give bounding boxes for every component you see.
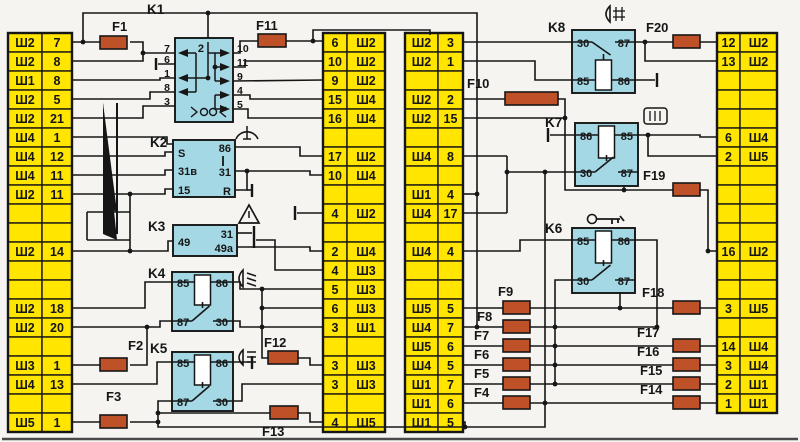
- fuse-body: [505, 92, 558, 105]
- fuse-F7: [503, 339, 530, 352]
- connector-cell-text: Ш5: [749, 302, 769, 316]
- junction-dot: [618, 306, 623, 311]
- wire: [72, 321, 172, 327]
- connector-cell: [717, 318, 740, 337]
- relay-name-label: K1: [147, 2, 165, 17]
- fuse-F5: [503, 377, 530, 390]
- wire: [72, 189, 173, 194]
- connector-cell-text: Ш5: [412, 340, 432, 354]
- connector-cell-text: Ш2: [356, 36, 376, 50]
- connector-cell: [323, 128, 347, 147]
- fuse-body: [100, 36, 127, 49]
- fuse-label: F12: [264, 335, 286, 350]
- connector-cell-text: Ш1: [356, 321, 376, 335]
- connector-cell-text: Ш1: [412, 416, 432, 430]
- junction-dot: [311, 39, 316, 44]
- connector-cell-text: 11: [50, 169, 63, 183]
- connector-cell: [42, 280, 72, 299]
- connector-cell-text: Ш2: [15, 112, 35, 126]
- connector-cell-text: 17: [328, 150, 342, 164]
- junction-dot: [128, 192, 133, 197]
- fuse-body: [268, 351, 298, 364]
- junction-dot: [553, 363, 558, 368]
- fuse-label: F13: [262, 424, 284, 439]
- connector-cell: [740, 204, 777, 223]
- relay-pin-label: 86: [219, 143, 231, 155]
- connector-cell: [740, 261, 777, 280]
- fuse-F6: [503, 358, 530, 371]
- connector-cell-text: Ш4: [15, 169, 35, 183]
- connector-cell-text: Ш2: [749, 245, 769, 259]
- fuse-label: F18: [642, 285, 664, 300]
- junction-dot: [213, 65, 218, 70]
- connector-cell-text: Ш2: [356, 150, 376, 164]
- connector-cell-text: 4: [332, 416, 339, 430]
- relay-pin-label: 86: [216, 278, 228, 290]
- fuse-F1: [100, 36, 127, 49]
- relay-pin-label: 49: [178, 237, 190, 249]
- wire: [72, 78, 175, 80]
- connector-cell: [740, 185, 777, 204]
- junction-dot: [463, 425, 468, 430]
- relay-pin-label: 15: [178, 185, 190, 197]
- fuse-body: [673, 377, 700, 390]
- relay-pin-label: 85: [577, 236, 589, 248]
- connector-cell-text: 5: [447, 302, 454, 316]
- relay-pin-label: 85: [577, 76, 589, 88]
- wire: [233, 80, 323, 81]
- connector-cell: [740, 71, 777, 90]
- wiper-icon: [236, 126, 258, 139]
- fuse-body: [503, 377, 530, 390]
- relay-name-label: K6: [545, 221, 563, 236]
- fuse-label: F14: [640, 382, 663, 397]
- junction-dot: [543, 170, 548, 175]
- connector-cell-text: Ш2: [412, 36, 432, 50]
- connector-cell-text: 6: [332, 302, 339, 316]
- fuse-relay-wiring-diagram: Ш27Ш28Ш18Ш25Ш221Ш41Ш412Ш411Ш211Ш214Ш218Ш…: [0, 0, 800, 442]
- connector-cell-text: 7: [447, 378, 454, 392]
- relay-coil: [195, 355, 211, 385]
- connector-cell-text: Ш4: [749, 131, 769, 145]
- connector-cell-text: 12: [722, 36, 736, 50]
- connector-cell-text: Ш4: [412, 150, 432, 164]
- relay-pin-label: 3: [164, 96, 170, 108]
- connector-cell-text: 4: [447, 188, 454, 202]
- fuse-label: F8: [477, 309, 492, 324]
- connector-cell: [8, 204, 42, 223]
- connector-cell-text: 11: [50, 188, 63, 202]
- connector-cell-text: Ш2: [356, 74, 376, 88]
- wire: [233, 95, 323, 99]
- connector-cell-text: 1: [54, 416, 61, 430]
- connector-cell-text: Ш2: [15, 321, 35, 335]
- junction-dot: [563, 116, 568, 121]
- connector-cell: [740, 280, 777, 299]
- relay-coil: [195, 275, 211, 305]
- icon-stroke: [247, 283, 256, 286]
- relay-pin-label: 6: [164, 54, 170, 66]
- connector-cell-text: 3: [725, 359, 732, 373]
- heated-rear-window-icon: [644, 108, 667, 124]
- wire: [227, 321, 323, 327]
- connector-cell-text: Ш4: [15, 131, 35, 145]
- connector-cell-text: 10: [328, 55, 342, 69]
- junction-dot: [260, 325, 265, 330]
- wire: [72, 241, 173, 251]
- fuse-label: F9: [498, 284, 513, 299]
- junction-dot: [475, 192, 480, 197]
- connector-cell-text: Ш2: [412, 112, 432, 126]
- connector-cell: [740, 109, 777, 128]
- connector-cell-text: Ш2: [15, 188, 35, 202]
- wire: [463, 240, 572, 251]
- junction-dot: [706, 249, 711, 254]
- fuse-F13: [270, 406, 298, 419]
- connector-cell: [717, 185, 740, 204]
- connector-cell: [323, 394, 347, 413]
- connector-cell-text: 10: [328, 169, 342, 183]
- connector-cell-text: 4: [447, 245, 454, 259]
- relay-pin-label: 4: [237, 85, 243, 97]
- junction-dot: [206, 11, 211, 16]
- junction-dot: [505, 170, 510, 175]
- relay-pin-label: 85: [177, 358, 189, 370]
- relay-pin-label: 10: [237, 43, 249, 55]
- connector-cell-text: 6: [447, 397, 454, 411]
- connector-cell-text: 15: [328, 93, 342, 107]
- connector-cell-text: 5: [447, 416, 454, 430]
- wire: [237, 247, 323, 251]
- connector-cell-text: Ш2: [412, 55, 432, 69]
- connector-cell-text: 16: [328, 112, 342, 126]
- connector-cell-text: Ш4: [412, 359, 432, 373]
- connector-cell: [8, 394, 42, 413]
- connector-cell: [347, 185, 385, 204]
- relay-pin-label: 5: [237, 99, 243, 111]
- connector-cell-text: 14: [50, 245, 64, 259]
- relay-pin-label: 11: [237, 57, 248, 69]
- wire: [648, 135, 717, 156]
- connector-cell-text: Ш4: [15, 150, 35, 164]
- connector-cell-text: 18: [50, 302, 64, 316]
- connector-cell-text: 13: [722, 55, 736, 69]
- connector-cell-text: 1: [447, 55, 454, 69]
- connector-cell: [347, 337, 385, 356]
- connector-cell-text: Ш1: [749, 397, 769, 411]
- wire: [235, 147, 323, 156]
- connector-cell-text: Ш5: [356, 416, 376, 430]
- connector-cell-text: Ш3: [356, 302, 376, 316]
- junction-dot: [260, 306, 265, 311]
- wire: [227, 384, 323, 401]
- fuse-label: F17: [637, 325, 659, 340]
- connector-cell: [717, 71, 740, 90]
- lamp-lens: [606, 6, 610, 22]
- junction-dot: [553, 325, 558, 330]
- fuse-body: [673, 396, 700, 409]
- connector-cell-text: 8: [447, 150, 454, 164]
- connector-cell: [42, 261, 72, 280]
- connector-cell-text: 2: [447, 93, 454, 107]
- relay-pin-label: 87: [177, 317, 189, 329]
- wire: [72, 170, 173, 175]
- junction-dot: [245, 169, 250, 174]
- connector-cell: [8, 223, 42, 242]
- wire: [635, 240, 657, 327]
- connector-cell-text: 8: [54, 55, 61, 69]
- hazard-warning-icon: [239, 205, 259, 223]
- fuse-label: F1: [112, 19, 127, 34]
- connector-cell-text: Ш1: [412, 188, 432, 202]
- junction-dot: [553, 382, 558, 387]
- fuse-F11: [258, 34, 286, 47]
- connector-cell: [42, 394, 72, 413]
- fuse-label: F2: [128, 338, 143, 353]
- connector-cell-text: Ш2: [15, 36, 35, 50]
- fuse-label: F10: [467, 76, 489, 91]
- connector-cell: [347, 128, 385, 147]
- icon-stroke: [247, 278, 256, 281]
- relay-pin-label: 2: [198, 43, 204, 55]
- connector-cell: [347, 394, 385, 413]
- relay-pin-label: 31: [219, 167, 231, 179]
- connector-cell: [438, 280, 463, 299]
- connector-cell-text: Ш3: [356, 359, 376, 373]
- connector-cell-text: 12: [50, 150, 64, 164]
- diode-triangle: [103, 103, 117, 240]
- connector-cell-text: Ш4: [412, 321, 432, 335]
- connector-cell-text: Ш4: [356, 93, 376, 107]
- connector-cell-text: Ш4: [749, 340, 769, 354]
- fuse-F15: [673, 377, 700, 390]
- connector-cell: [323, 185, 347, 204]
- junction-dot: [622, 188, 627, 193]
- connector-cell-text: 6: [332, 36, 339, 50]
- relay-name-label: K2: [150, 135, 167, 150]
- relay-pin-label: 30: [577, 38, 589, 50]
- connector-cell: [405, 280, 438, 299]
- fuse-label: F20: [646, 20, 668, 35]
- connector-cell: [42, 223, 72, 242]
- junction-dot: [553, 344, 558, 349]
- wire: [72, 282, 172, 308]
- relay-pin-label: 85: [621, 131, 633, 143]
- connector-cell-text: Ш1: [15, 74, 35, 88]
- icon-stroke: [620, 216, 624, 221]
- junction-dot: [646, 133, 651, 138]
- connector-cell-text: Ш4: [412, 207, 432, 221]
- relay-pin-label: R: [223, 186, 231, 198]
- junction-dot: [156, 420, 161, 425]
- junction-dot: [260, 287, 265, 292]
- relay-pin-label: 30: [216, 397, 228, 409]
- connector-cell: [405, 71, 438, 90]
- fuse-label: F15: [640, 363, 662, 378]
- fuse-body: [503, 301, 530, 314]
- fuse-F17: [673, 339, 700, 352]
- fuse-label: F19: [643, 168, 665, 183]
- connector-cell-text: 2: [332, 245, 339, 259]
- relay-coil: [599, 126, 615, 158]
- fuse-body: [673, 301, 700, 314]
- connector-cell-text: Ш2: [749, 55, 769, 69]
- fuse-body: [503, 339, 530, 352]
- connector-cell-text: 13: [50, 378, 64, 392]
- connector-cell: [438, 71, 463, 90]
- wire: [72, 92, 175, 99]
- connector-cell-text: 21: [50, 112, 64, 126]
- fuse-label: F16: [637, 344, 659, 359]
- junction-dot: [156, 411, 161, 416]
- junction-dot: [145, 325, 150, 330]
- connector-cell: [405, 261, 438, 280]
- wire: [235, 171, 247, 190]
- fuse-body: [673, 358, 700, 371]
- connector-cell: [42, 337, 72, 356]
- connector-cell: [717, 204, 740, 223]
- connector-cell: [438, 166, 463, 185]
- wire: [233, 109, 323, 118]
- connector-cell-text: Ш4: [356, 245, 376, 259]
- connector-cell-text: 5: [447, 359, 454, 373]
- icon-stroke: [247, 273, 256, 276]
- connector-cell: [323, 337, 347, 356]
- high-beam-icon: [239, 350, 256, 365]
- connector-cell-text: 9: [332, 74, 339, 88]
- relay-name-label: K5: [150, 341, 168, 356]
- connector-cell: [42, 204, 72, 223]
- connector-cell-text: 6: [725, 131, 732, 145]
- wiring-diagram-canvas: Ш27Ш28Ш18Ш25Ш221Ш41Ш412Ш411Ш211Ш214Ш218Ш…: [0, 0, 800, 442]
- connector-cell: [438, 223, 463, 242]
- connector-cell-text: Ш3: [356, 378, 376, 392]
- connector-cell-text: 4: [332, 264, 339, 278]
- wire: [700, 190, 717, 251]
- wire: [298, 413, 323, 422]
- connector-cell-text: 8: [54, 74, 61, 88]
- connector-cell-text: 14: [722, 340, 736, 354]
- relay-pin-label: 86: [216, 358, 228, 370]
- fuse-body: [673, 35, 700, 48]
- connector-cell: [717, 261, 740, 280]
- relay-pin-label: 30: [577, 276, 589, 288]
- connector-cell: [717, 166, 740, 185]
- fuse-body: [503, 358, 530, 371]
- connector-cell-text: 1: [54, 359, 61, 373]
- connector-cell-text: 1: [725, 397, 732, 411]
- fuse-F20: [673, 35, 700, 48]
- diode-icon: [103, 103, 117, 240]
- connector-cell-text: 4: [332, 207, 339, 221]
- connector-cell-text: Ш1: [412, 378, 432, 392]
- relay-pin-label: 87: [618, 38, 630, 50]
- connector-cell: [8, 280, 42, 299]
- connector-cell: [740, 318, 777, 337]
- connector-cell-text: Ш2: [15, 55, 35, 69]
- connector-cell-text: Ш4: [356, 169, 376, 183]
- fuse-F10: [505, 92, 558, 105]
- fuse-body: [100, 415, 127, 428]
- wire: [72, 106, 175, 118]
- connector-cell-text: Ш4: [356, 112, 376, 126]
- fuse-label: F4: [474, 385, 490, 400]
- connector-cell-text: Ш1: [412, 397, 432, 411]
- relay-pin-label: 8: [164, 82, 170, 94]
- fuse-body: [503, 320, 530, 333]
- connector-cell-text: 16: [722, 245, 736, 259]
- fuse-F16: [673, 358, 700, 371]
- fuse-F4: [503, 396, 530, 409]
- connector-cell-text: 7: [54, 36, 61, 50]
- connector-cell-text: 3: [447, 36, 454, 50]
- fuse-F3: [100, 415, 127, 428]
- relay-pin-label: 31в: [178, 166, 197, 178]
- connector-cell-text: Ш3: [15, 359, 35, 373]
- fuse-label: F11: [256, 18, 278, 33]
- connector-cell-text: 7: [447, 321, 454, 335]
- connector-cell: [717, 280, 740, 299]
- fuse-F19: [673, 183, 700, 196]
- connector-cell-text: Ш3: [356, 264, 376, 278]
- connector-cell: [405, 166, 438, 185]
- connector-cell-text: Ш2: [356, 207, 376, 221]
- fuse-F2: [100, 358, 127, 371]
- junction-dot: [128, 249, 133, 254]
- low-beam-icon: [239, 270, 256, 287]
- key-bow: [588, 215, 597, 224]
- wire: [256, 240, 323, 270]
- fuse-body: [503, 396, 530, 409]
- connector-cell-text: Ш2: [15, 245, 35, 259]
- connector-cell: [405, 128, 438, 147]
- ignition-key-icon: [588, 215, 625, 225]
- connector-cell-text: Ш4: [412, 245, 432, 259]
- connector-cell-text: Ш5: [749, 150, 769, 164]
- relay-pin-label: 31: [221, 229, 233, 241]
- connector-cell: [438, 261, 463, 280]
- relay-pin-label: 30: [216, 317, 228, 329]
- connector-cell: [717, 90, 740, 109]
- connector-cell: [347, 223, 385, 242]
- fuse-F14: [673, 396, 700, 409]
- connector-cell-text: Ш2: [749, 36, 769, 50]
- connector-cell-text: 6: [447, 340, 454, 354]
- connector-column-right: [717, 33, 777, 413]
- relay-pin-label: 30: [580, 168, 592, 180]
- fuse-F12: [268, 351, 298, 364]
- connector-cell-text: 3: [332, 378, 339, 392]
- relay-name-label: K3: [148, 219, 166, 234]
- relay-pin-label: 49а: [215, 243, 234, 255]
- wire: [555, 280, 572, 384]
- connector-cell: [740, 90, 777, 109]
- connector-cell-text: 2: [725, 378, 732, 392]
- fuse-F8: [503, 320, 530, 333]
- fuse-F18: [673, 301, 700, 314]
- connector-cell-text: Ш2: [412, 93, 432, 107]
- relay-coil: [596, 60, 612, 90]
- relay-pin-label: 86: [580, 131, 592, 143]
- fuse-body: [270, 406, 298, 419]
- connector-cell-text: 3: [725, 302, 732, 316]
- connector-cell-text: 1: [54, 131, 61, 145]
- connector-cell-text: 20: [50, 321, 64, 335]
- fuse-body: [673, 339, 700, 352]
- connector-cell: [405, 223, 438, 242]
- connector-cell-text: Ш4: [749, 359, 769, 373]
- connector-cell: [8, 337, 42, 356]
